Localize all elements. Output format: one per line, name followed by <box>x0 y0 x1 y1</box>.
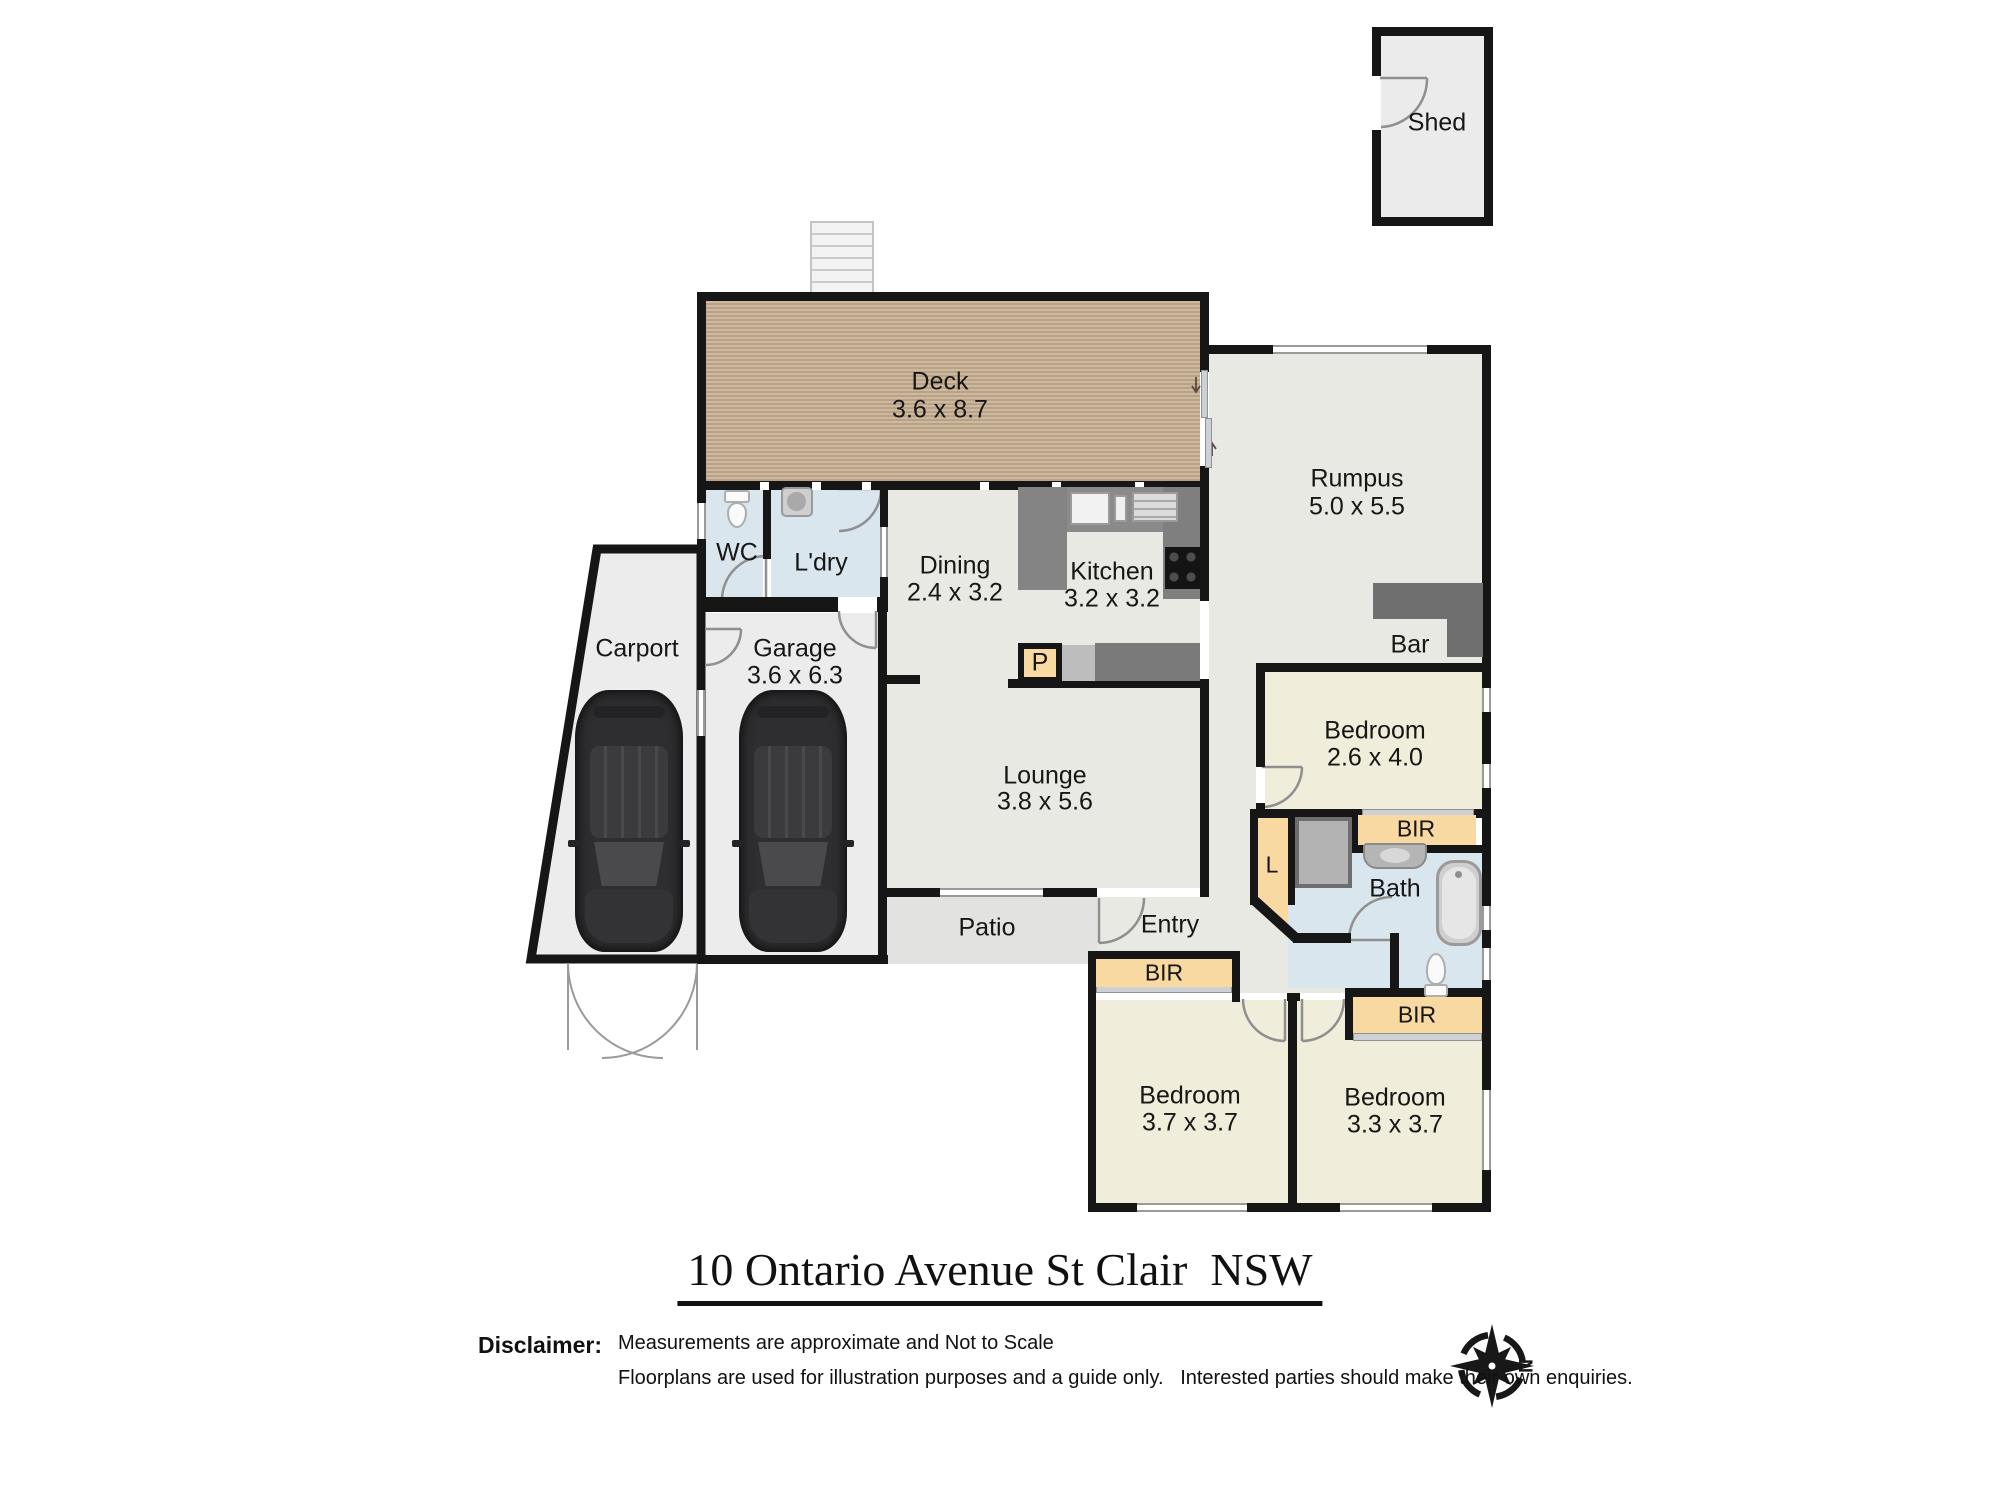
bar-counter <box>1373 583 1483 619</box>
window <box>1482 764 1491 788</box>
kitchen-sink <box>1070 492 1110 525</box>
bedroom-rear-door-arc <box>1262 767 1302 807</box>
room-dims-bedroom-rear: 2.6 x 4.0 <box>1327 746 1423 771</box>
window <box>1273 345 1427 354</box>
disclaimer-line2: Floorplans are used for illustration pur… <box>618 1367 1633 1390</box>
room-label-wc: WC <box>716 541 758 566</box>
room-label-carport: Carport <box>595 637 678 662</box>
wall <box>887 675 920 684</box>
cooktop <box>1165 547 1200 589</box>
room-dims-garage: 3.6 x 6.3 <box>747 664 843 689</box>
wall <box>1200 688 1209 897</box>
room-label-bedroom-left: Bedroom <box>1139 1084 1240 1109</box>
bath-toilet-bowl <box>1426 953 1446 985</box>
door-jamb <box>862 482 871 490</box>
room-label-patio: Patio <box>959 916 1016 941</box>
kitchen-appliance <box>1132 492 1178 522</box>
robe-slider-track <box>1353 1033 1482 1041</box>
garage-laundry-door-arc <box>839 611 876 648</box>
room-dims-deck: 3.6 x 8.7 <box>892 398 988 423</box>
door-jamb <box>812 482 821 490</box>
slider-arrow-down <box>1192 377 1200 392</box>
wall <box>697 955 888 964</box>
room-label-lounge: Lounge <box>1003 764 1086 789</box>
pantry-counter-dark <box>1095 643 1200 681</box>
room-label-bedroom-right: Bedroom <box>1344 1086 1445 1111</box>
door-jamb <box>760 482 769 490</box>
wall <box>697 292 1208 301</box>
wall <box>1474 809 1490 818</box>
kitchen-counter <box>1018 487 1067 590</box>
room-label-linen: L <box>1266 854 1279 877</box>
carport-gate-arcs <box>568 963 697 1058</box>
room-label-bir-right: BIR <box>1398 1004 1436 1027</box>
disclaimer-line1: Measurements are approximate and Not to … <box>618 1332 1633 1355</box>
laundry-door-arc <box>839 489 881 531</box>
bedroom-left-door-arc <box>1243 999 1285 1041</box>
room-dims-bedroom-left: 3.7 x 3.7 <box>1142 1111 1238 1136</box>
wall <box>1288 993 1297 1205</box>
wall <box>1200 481 1209 601</box>
disclaimer: Disclaimer: Measurements are approximate… <box>478 1332 1633 1390</box>
laundry-tub-bowl <box>787 492 806 511</box>
room-dims-lounge: 3.8 x 5.6 <box>997 790 1093 815</box>
garage-side-door-arc <box>705 629 741 665</box>
wall <box>1345 988 1353 1040</box>
window <box>1482 906 1491 930</box>
room-dims-kitchen: 3.2 x 3.2 <box>1064 587 1160 612</box>
wall <box>1256 663 1490 672</box>
bath-door-arc <box>1349 897 1392 940</box>
room-label-bir-left: BIR <box>1145 962 1183 985</box>
room-label-kitchen: Kitchen <box>1070 560 1153 585</box>
car-carport <box>575 690 683 952</box>
sliding-door-track <box>1201 370 1208 418</box>
room-label-laundry: L'dry <box>794 551 847 576</box>
room-label-rumpus: Rumpus <box>1310 467 1403 492</box>
room-label-bedroom-rear: Bedroom <box>1324 719 1425 744</box>
room-label-bir-rear: BIR <box>1397 818 1435 841</box>
entry-door-arc <box>1099 898 1144 943</box>
wall <box>1088 993 1096 1212</box>
window <box>697 690 705 736</box>
window <box>1482 948 1491 980</box>
bath-vanity-basin <box>1380 848 1410 863</box>
bedroom-right-door-arc <box>1302 999 1344 1041</box>
wall <box>1256 663 1265 767</box>
room-dims-dining: 2.4 x 3.2 <box>907 581 1003 606</box>
page-title: 10 Ontario Avenue St Clair NSW <box>677 1243 1322 1306</box>
wall <box>697 606 705 629</box>
wall <box>697 597 838 612</box>
room-label-garage: Garage <box>753 637 836 662</box>
wall <box>1250 809 1258 905</box>
room-dims-bedroom-right: 3.3 x 3.7 <box>1347 1113 1443 1138</box>
door-jamb <box>980 482 989 490</box>
wall <box>1088 951 1240 959</box>
wall <box>878 601 887 897</box>
wall <box>878 897 887 964</box>
wall <box>697 481 706 606</box>
wall <box>1288 812 1295 905</box>
room-label-bar: Bar <box>1391 633 1430 658</box>
wall <box>1390 933 1399 995</box>
window <box>1482 1090 1491 1170</box>
window <box>1137 1203 1247 1212</box>
wall <box>1200 292 1209 372</box>
bath-toilet-tank <box>1424 984 1448 997</box>
wall <box>1293 933 1351 943</box>
car-garage <box>739 690 847 952</box>
sliding-door-track <box>1205 418 1212 468</box>
wall <box>1345 988 1490 997</box>
room-label-dining: Dining <box>920 554 991 579</box>
wall <box>763 481 771 559</box>
room-label-entry: Entry <box>1141 913 1199 938</box>
shower <box>1295 817 1352 888</box>
bar-counter <box>1447 617 1483 657</box>
room-dims-rumpus: 5.0 x 5.5 <box>1309 495 1405 520</box>
room-label-shed: Shed <box>1408 111 1466 136</box>
wall <box>697 292 706 490</box>
bathtub-drain <box>1455 871 1462 878</box>
disclaimer-label: Disclaimer: <box>478 1332 602 1359</box>
pantry-counter <box>1062 645 1095 681</box>
window <box>697 503 706 539</box>
room-label-pantry: P <box>1032 651 1049 676</box>
wall <box>1232 951 1240 1002</box>
window <box>1340 1203 1432 1212</box>
wall <box>1287 993 1300 1001</box>
window <box>1482 688 1491 712</box>
room-label-deck: Deck <box>912 370 969 395</box>
floorplan-canvas: N <box>0 0 2000 1500</box>
room-label-bath: Bath <box>1369 877 1420 902</box>
window <box>940 888 1043 897</box>
window <box>880 527 888 577</box>
kitchen-faucet <box>1114 495 1127 522</box>
